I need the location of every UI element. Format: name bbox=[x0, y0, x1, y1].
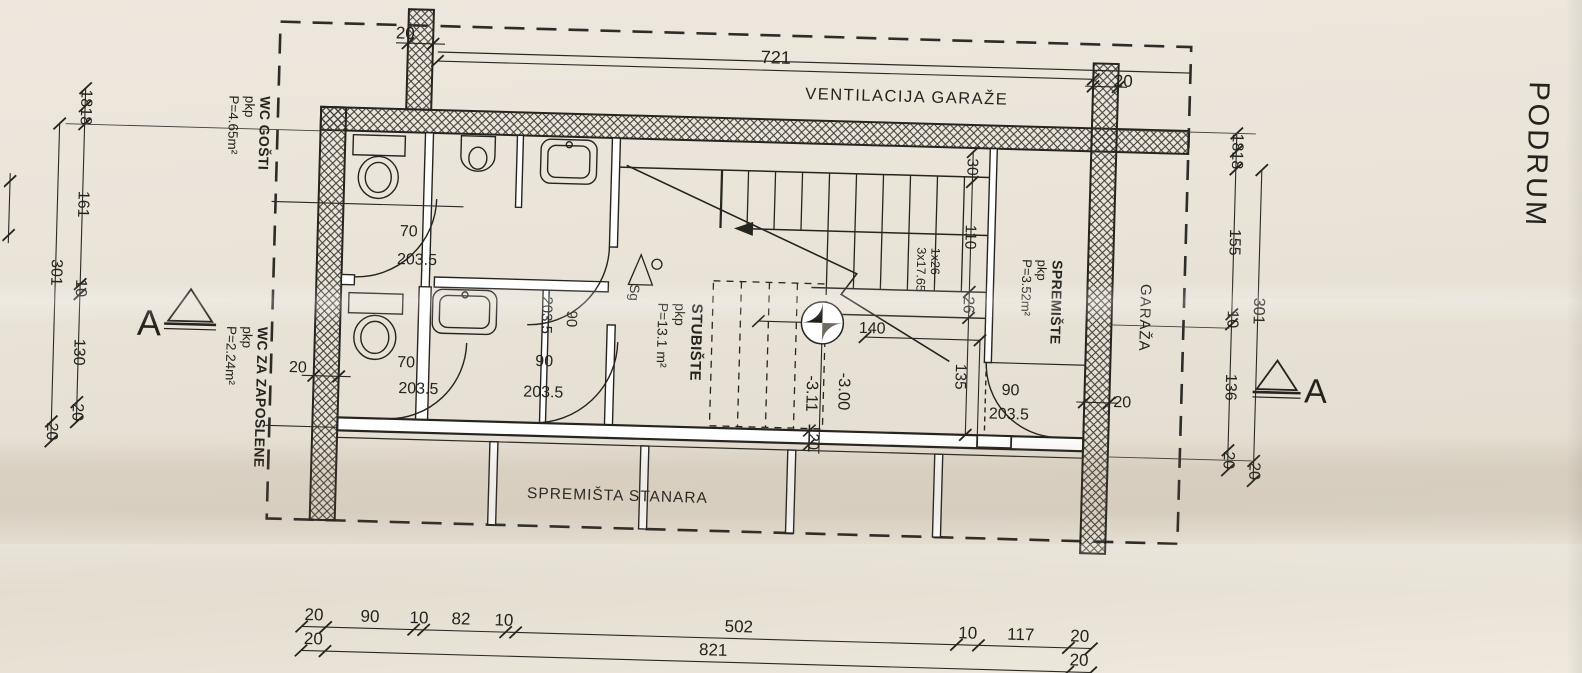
dim-right-total2: 20 bbox=[1245, 462, 1261, 480]
dim-bottom1-7: 117 bbox=[1007, 626, 1035, 644]
dim-wall-right: 20 bbox=[1113, 395, 1131, 411]
door-d4-width: 90 bbox=[535, 354, 553, 370]
door-d5-width: 90 bbox=[1001, 383, 1019, 399]
door-d4-height: 203.5 bbox=[523, 385, 563, 402]
dim-stair-3: 135 bbox=[952, 364, 968, 390]
dim-landing: 140 bbox=[859, 321, 886, 338]
door-d3-width: 70 bbox=[397, 355, 415, 371]
room-name: SPREMIŠTE bbox=[1047, 260, 1064, 345]
room-label-stubiste: STUBIŠTE pkp P=13.1 m² bbox=[652, 302, 705, 381]
room-area: P=3.52m² bbox=[1017, 259, 1034, 344]
door-d2-height: 203.5 bbox=[538, 296, 554, 334]
dim-wall-bottom: 20 bbox=[805, 433, 820, 450]
dim-bottom1-6: 10 bbox=[958, 624, 977, 642]
door-d1-height: 203.5 bbox=[397, 252, 437, 269]
dim-bottom1-4: 10 bbox=[494, 611, 513, 629]
dim-right-5: 20 bbox=[1219, 451, 1235, 469]
door-d1-width: 70 bbox=[400, 224, 418, 240]
room-area: P=4.65m² bbox=[223, 95, 241, 169]
dim-left-total: 301 bbox=[47, 259, 64, 286]
dim-left-3: 10 bbox=[72, 279, 88, 297]
room-area: P=13.1 m² bbox=[652, 302, 671, 380]
dim-bottom1-0: 20 bbox=[304, 606, 323, 624]
staircase bbox=[612, 165, 989, 433]
room-name: WC GOŠTI bbox=[255, 96, 273, 170]
dim-stair-0: 30 bbox=[964, 158, 980, 176]
dim-left-2: 161 bbox=[74, 191, 91, 218]
paper-canvas: PODRUM VENTILACIJA GARAŽE SPREMIŠTA STAN… bbox=[0, 0, 1582, 673]
dim-wall-left: 20 bbox=[289, 360, 307, 376]
dim-bottom2-2: 20 bbox=[1069, 651, 1088, 669]
door-d3-height: 203.5 bbox=[398, 381, 438, 398]
dim-bottom1-5: 502 bbox=[724, 618, 753, 636]
stair-step-annotation: 1x26 3x17.65 bbox=[913, 247, 942, 292]
dim-right-3: 10 bbox=[1223, 310, 1239, 328]
dim-top-wall: 20 bbox=[1114, 72, 1133, 90]
dim-stair-2: 26 bbox=[960, 296, 976, 314]
dim-bottom1-3: 82 bbox=[451, 610, 470, 628]
dim-right-2: 155 bbox=[1225, 229, 1242, 256]
walls-partition bbox=[335, 130, 1092, 541]
urinal-icon bbox=[460, 136, 495, 172]
dim-left-0: 18 bbox=[77, 89, 93, 107]
dim-bottom1-1: 90 bbox=[360, 608, 379, 626]
stair-risers: 3x17.65 bbox=[913, 247, 928, 292]
dim-right-1: 18 bbox=[1228, 151, 1244, 169]
floor-drain-icon bbox=[628, 254, 662, 285]
drain-label: Sg bbox=[627, 284, 641, 301]
room-label-wc-gosti: WC GOŠTI pkp P=4.65m² bbox=[223, 95, 273, 170]
scanned-floor-plan-sheet: PODRUM VENTILACIJA GARAŽE SPREMIŠTA STAN… bbox=[0, 0, 1582, 673]
room-label-spremiste: SPREMIŠTE pkp P=3.52m² bbox=[1017, 259, 1064, 345]
room-finish: pkp bbox=[669, 303, 688, 381]
level-lower: -3.11 bbox=[803, 375, 821, 412]
dim-bottom2-0: 20 bbox=[304, 630, 323, 648]
room-label-wc-zaposleni: WC ZA ZAPOSLENE pkp P=2.24m² bbox=[219, 326, 271, 468]
dim-bottom1-2: 10 bbox=[409, 609, 428, 627]
toilet-icon bbox=[347, 293, 403, 360]
toilet-icon bbox=[352, 135, 406, 199]
dim-right-4: 136 bbox=[1221, 374, 1238, 401]
stair-treads: 1x26 bbox=[927, 248, 942, 293]
room-name: STUBIŠTE bbox=[686, 303, 705, 381]
dim-bottom1-8: 20 bbox=[1070, 627, 1089, 645]
dim-left-1: 18 bbox=[77, 107, 93, 125]
page-title: PODRUM bbox=[1520, 81, 1553, 229]
door-d2-width: 90 bbox=[564, 310, 579, 327]
dim-left-total2: 20 bbox=[43, 422, 59, 440]
door-d5-height: 203.5 bbox=[989, 407, 1029, 424]
dim-left-5: 20 bbox=[68, 403, 84, 421]
section-letter-right: A bbox=[1304, 374, 1328, 409]
sink-icon bbox=[432, 289, 497, 335]
section-letter-left: A bbox=[137, 305, 162, 342]
dim-stair-1: 110 bbox=[962, 224, 978, 249]
dim-top-span: 721 bbox=[761, 48, 792, 67]
dim-top-col: 20 bbox=[396, 24, 415, 42]
dim-bottom2-1: 821 bbox=[699, 641, 728, 659]
room-label-garaza: GARAŽA bbox=[1136, 284, 1153, 352]
dim-right-0: 18 bbox=[1228, 133, 1244, 151]
sink-icon bbox=[540, 139, 597, 185]
dim-right-total: 301 bbox=[1250, 297, 1267, 324]
level-floor: -3.00 bbox=[835, 372, 853, 410]
dim-left-4: 130 bbox=[70, 339, 87, 366]
